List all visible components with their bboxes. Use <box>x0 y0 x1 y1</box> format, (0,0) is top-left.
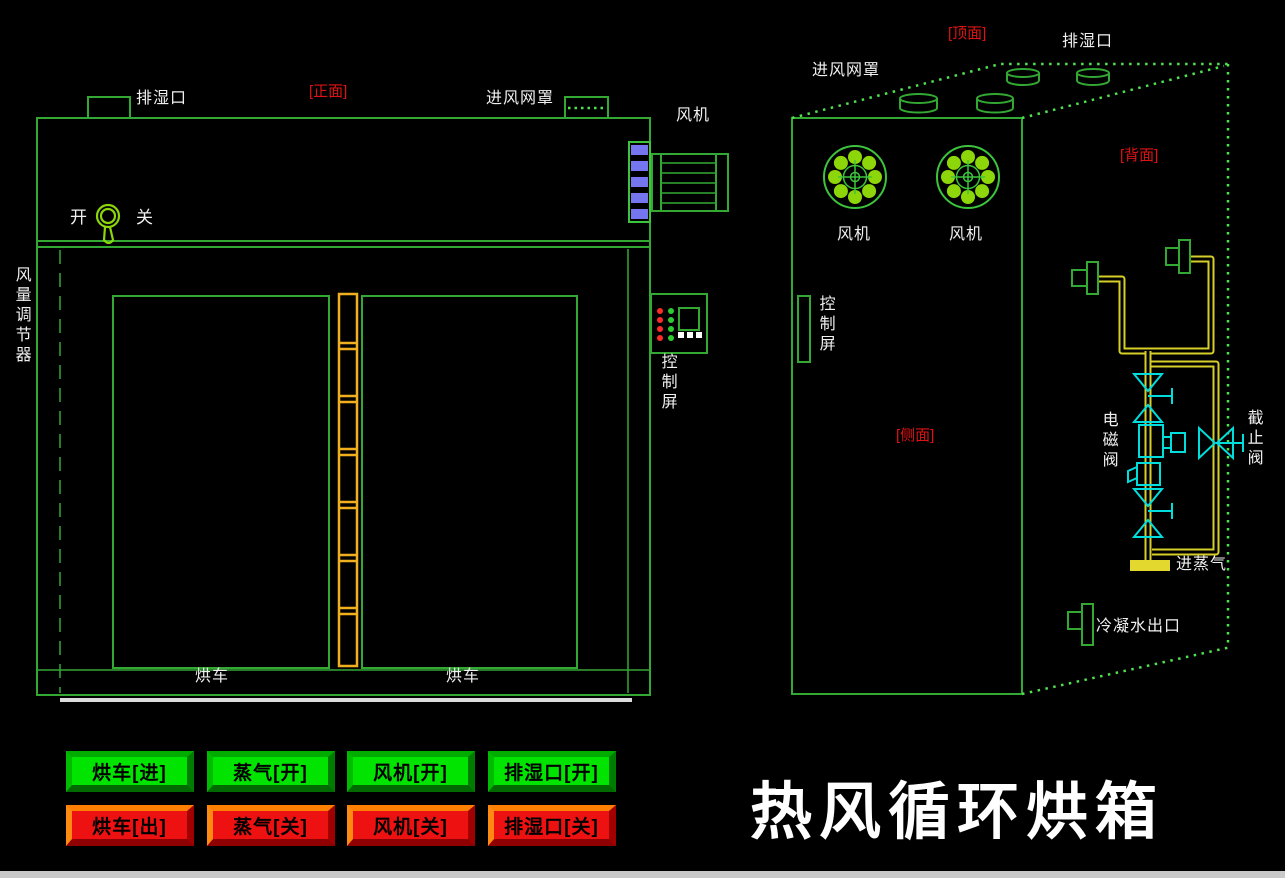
side-control-screen-bar <box>798 296 810 362</box>
air-damper-label: 风量调节器 <box>12 266 30 366</box>
button-steam-off[interactable]: 蒸气[关] <box>207 805 335 846</box>
condensate-outlet-fitting <box>1082 604 1093 645</box>
solenoid-valve-label: 电磁阀 <box>1099 411 1117 471</box>
page-title: 热风循环烘箱 <box>750 761 1164 851</box>
switch-close-label: 关 <box>136 209 154 228</box>
fan-fins-icon <box>629 142 650 222</box>
stop-valve-icon <box>1199 428 1243 458</box>
button-steam-on[interactable]: 蒸气[开] <box>207 751 335 792</box>
side-fan-left-label: 风机 <box>837 226 871 244</box>
button-vent-open[interactable]: 排湿口[开] <box>488 751 616 792</box>
fan-icon-right <box>937 146 999 208</box>
door-ladder <box>339 294 357 666</box>
button-cart-out[interactable]: 烘车[出] <box>66 805 194 846</box>
front-fan-label: 风机 <box>676 107 710 125</box>
cart-right-label: 烘车 <box>446 668 480 686</box>
panel-keys <box>678 332 702 338</box>
front-face-tag: [正面] <box>309 84 347 101</box>
oven-drawing <box>0 0 1285 878</box>
steam-inlet-label: 进蒸气 <box>1176 556 1227 574</box>
button-fan-on[interactable]: 风机[开] <box>347 751 475 792</box>
side-top-tag: [顶面] <box>948 26 986 43</box>
fan-icon-left <box>824 146 886 208</box>
side-view-outline <box>792 118 1022 694</box>
panel-red-leds <box>657 308 663 341</box>
solenoid-valve-icon <box>1128 374 1185 537</box>
front-control-screen-label: 控制屏 <box>658 353 676 413</box>
right-door <box>362 296 577 668</box>
side-inlet-mesh-label: 进风网罩 <box>812 62 880 80</box>
switch-open-label: 开 <box>70 209 88 228</box>
stop-valve-label: 截止阀 <box>1244 409 1262 469</box>
panel-screen <box>679 308 699 330</box>
front-moisture-vent-stub <box>88 97 130 118</box>
side-moisture-vent-label: 排湿口 <box>1062 33 1113 51</box>
cart-left-label: 烘车 <box>195 668 229 686</box>
top-vent-cylinders <box>900 69 1109 113</box>
fan-motor-icon <box>652 154 728 211</box>
front-inlet-mesh-label: 进风网罩 <box>486 90 554 108</box>
button-fan-off[interactable]: 风机[关] <box>347 805 475 846</box>
button-cart-in[interactable]: 烘车[进] <box>66 751 194 792</box>
side-side-tag: [侧面] <box>896 428 934 445</box>
front-moisture-vent-label: 排湿口 <box>136 90 187 108</box>
hmi-screen: 排湿口 [正面] 进风网罩 风机 开 关 风量调节器 控制屏 烘车 烘车 [顶面… <box>0 0 1285 878</box>
steam-inlet-flange <box>1130 560 1170 571</box>
control-panel-front <box>651 294 707 353</box>
side-control-screen-label: 控制屏 <box>816 295 834 355</box>
button-vent-close[interactable]: 排湿口[关] <box>488 805 616 846</box>
panel-green-leds <box>668 308 674 341</box>
side-back-tag: [背面] <box>1120 148 1158 165</box>
key-switch-icon[interactable] <box>97 205 119 243</box>
side-fan-right-label: 风机 <box>949 226 983 244</box>
left-door <box>113 296 329 668</box>
bottom-strip <box>0 871 1285 878</box>
condensate-outlet-label: 冷凝水出口 <box>1096 618 1181 636</box>
